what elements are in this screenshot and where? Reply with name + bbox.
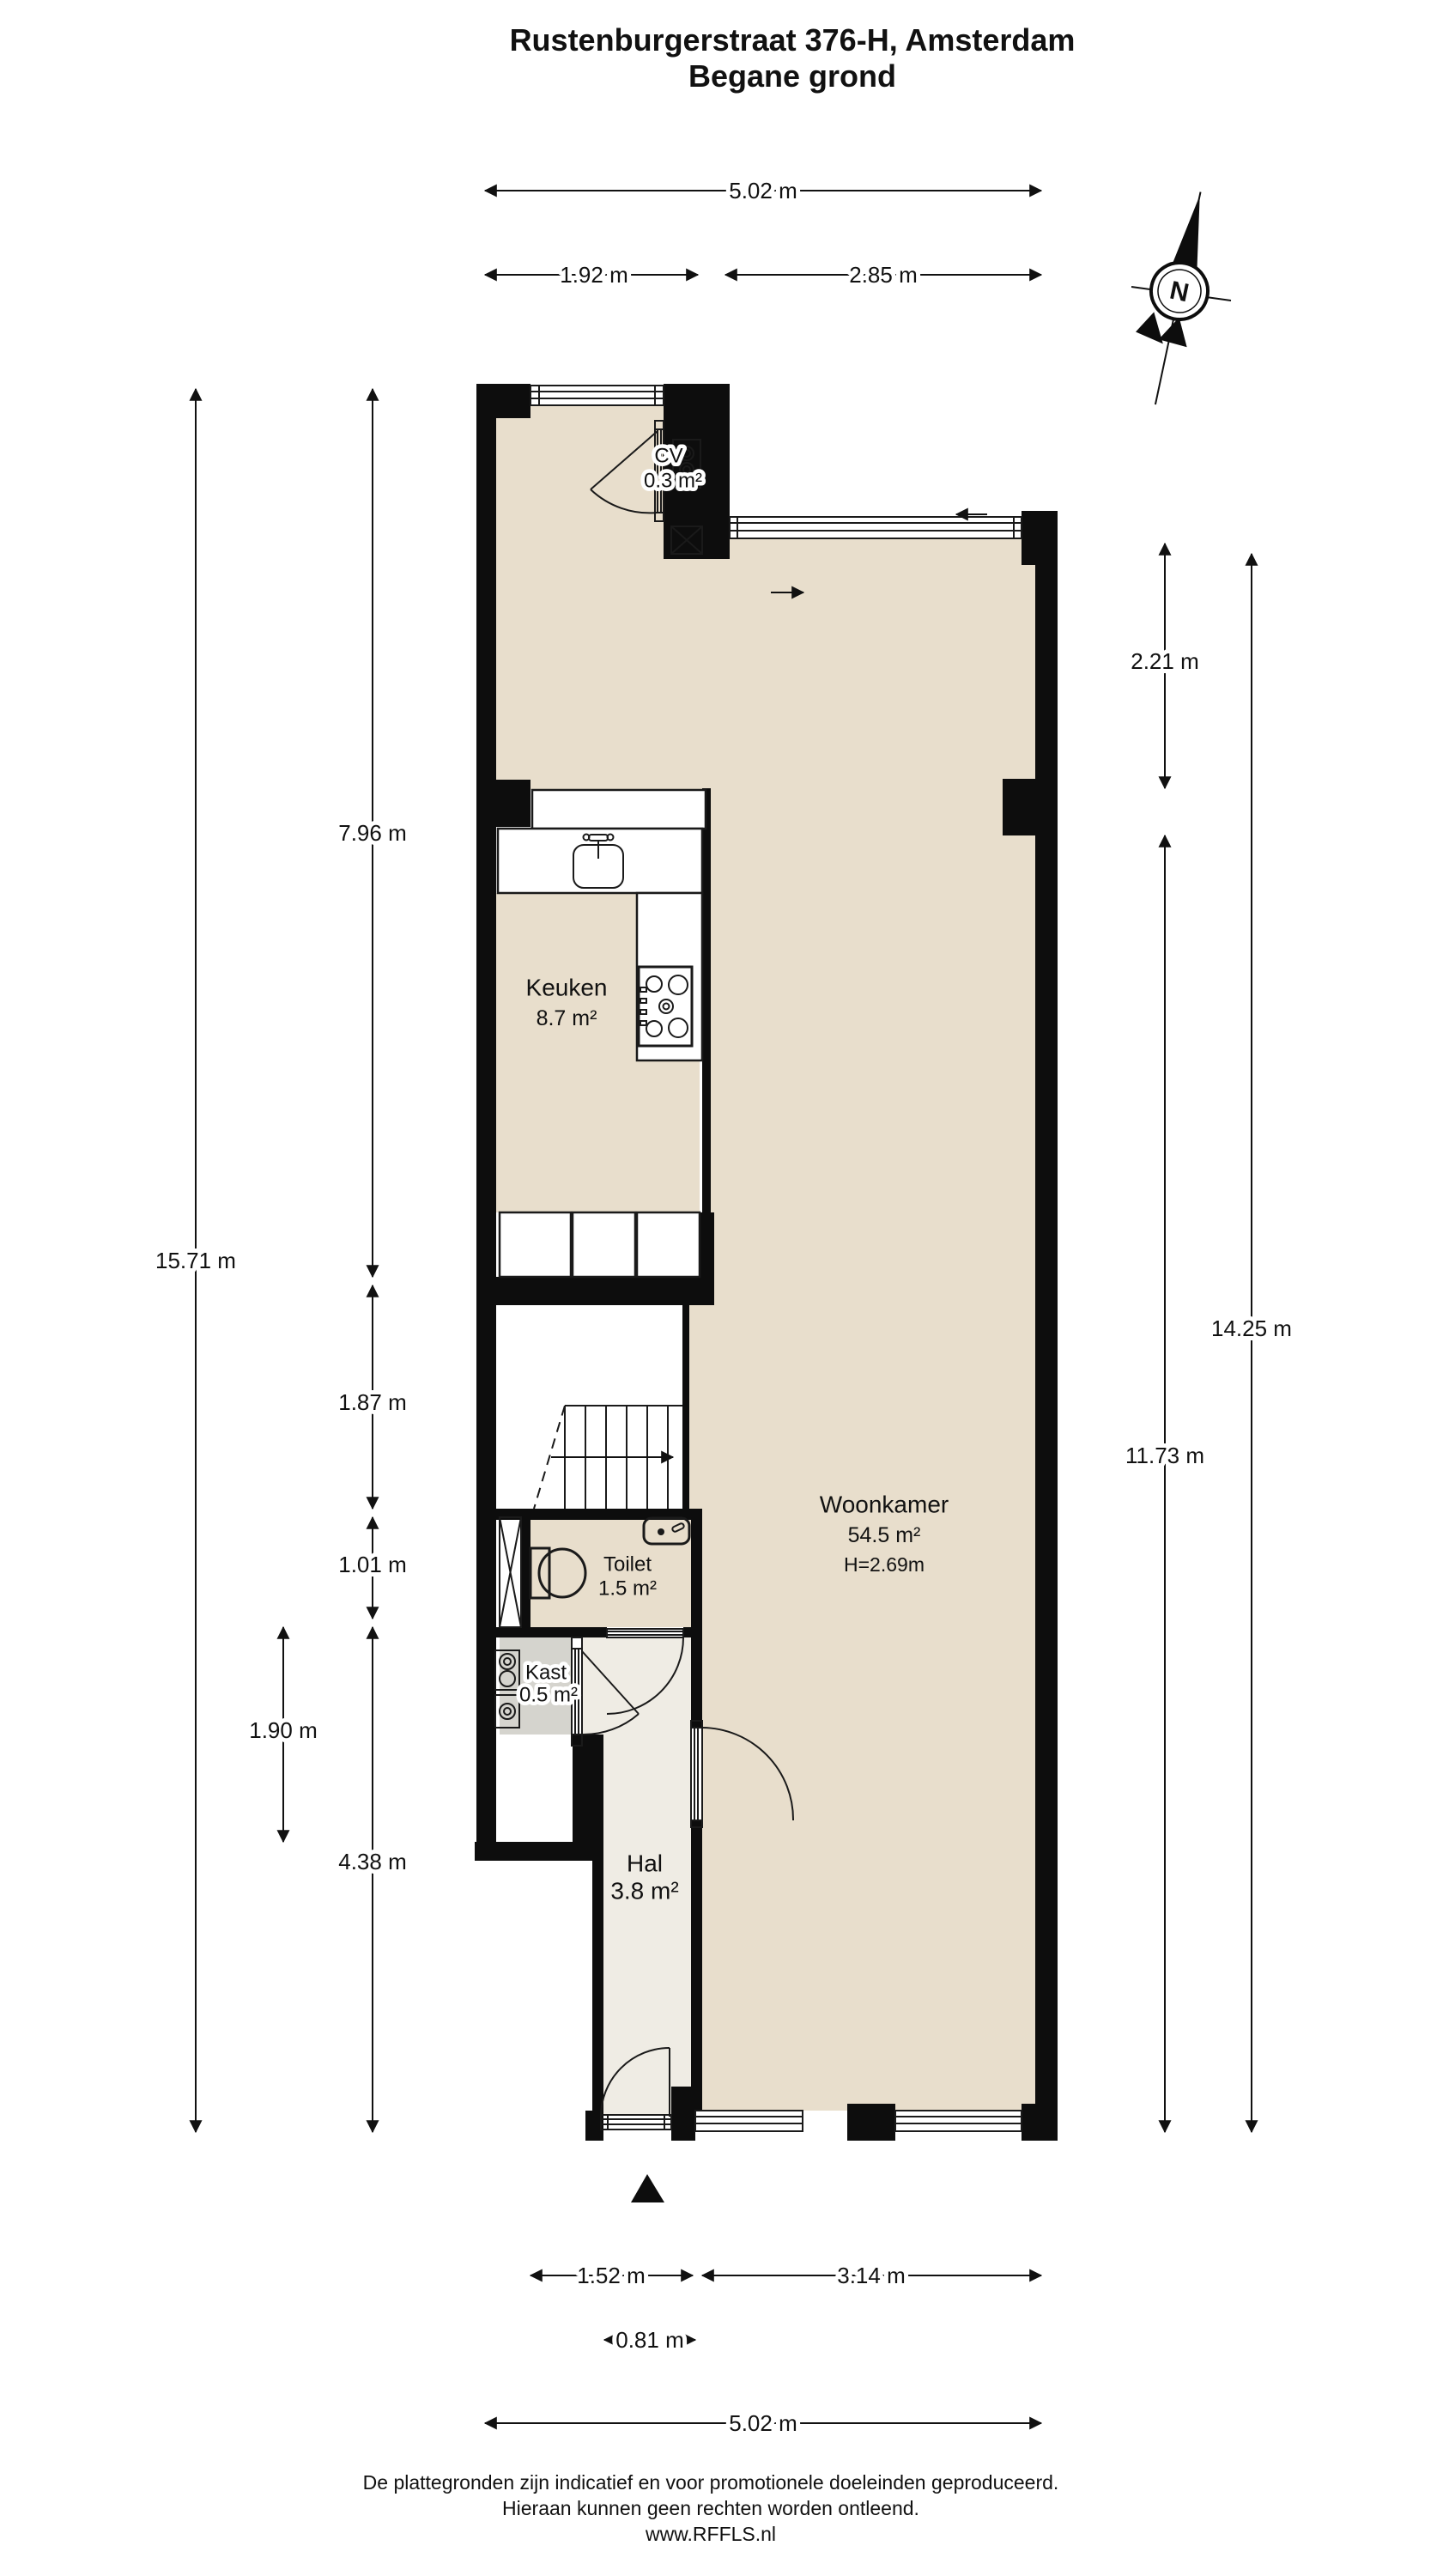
staircase <box>496 1305 682 1509</box>
cv-area: 0.3 m² <box>644 470 702 493</box>
dim-left-toilet: 1.01 m <box>338 1552 407 1577</box>
keuken-area: 8.7 m² <box>537 1006 597 1030</box>
hal-label: Hal <box>627 1850 663 1877</box>
window-bottom-left <box>695 2111 803 2131</box>
dim-right-lower: 11.73 m <box>1125 1443 1204 1468</box>
woonkamer-area: 54.5 m² <box>848 1523 921 1547</box>
front-room-floor <box>495 406 664 559</box>
window-bottom-right <box>895 2111 1022 2131</box>
window-north-long <box>730 517 1022 538</box>
toilet-area: 1.5 m² <box>598 1577 657 1601</box>
footer-disclaimer: De plattegronden zijn indicatief en voor… <box>0 2470 1422 2547</box>
kitchen-counter-top <box>532 790 706 829</box>
front-room-floor-lower <box>495 559 711 790</box>
shaft-icon <box>500 1517 521 1627</box>
toilet-label: Toilet <box>603 1553 652 1577</box>
woonkamer-height: H=2.69m <box>844 1553 925 1576</box>
dim-left-lower: 4.38 m <box>338 1849 407 1874</box>
footer-line-3: www.RFFLS.nl <box>0 2521 1422 2547</box>
dim-top-right: 2.85 m <box>849 262 918 288</box>
woonkamer-label: Woonkamer <box>820 1492 949 1518</box>
cv-label: CV <box>654 445 682 468</box>
dim-left-stairs: 1.87 m <box>338 1389 407 1415</box>
kast-label: Kast <box>525 1662 567 1685</box>
dim-bottom-window: 3.14 m <box>837 2263 906 2288</box>
compass-rose: N <box>1122 185 1231 410</box>
hal-area: 3.8 m² <box>610 1878 678 1905</box>
kitchen-counter-sink <box>498 829 702 893</box>
dim-top-left: 1.92 m <box>560 262 628 288</box>
window-top-left <box>530 386 664 405</box>
footer-line-1: De plattegronden zijn indicatief en voor… <box>0 2470 1422 2495</box>
floorplan-canvas: N 5.02 m 1.92 m 2.85 m <box>0 0 1449 2576</box>
entrance-marker-icon <box>631 2174 664 2202</box>
keuken-floor-right <box>637 1060 700 1212</box>
woonkamer-floor <box>689 538 1035 2111</box>
dim-top-total: 5.02 m <box>729 178 797 204</box>
footer-line-2: Hieraan kunnen geen rechten worden ontle… <box>0 2495 1422 2521</box>
dim-right-upper: 2.21 m <box>1131 648 1199 674</box>
floorplan-page: Rustenburgerstraat 376-H, Amsterdam Bega… <box>0 0 1449 2576</box>
dim-left-kast: 1.90 m <box>249 1717 318 1743</box>
kitchen-closet-row <box>500 1212 700 1277</box>
dim-bottom-door: 0.81 m <box>615 2327 684 2353</box>
dim-left-upper: 7.96 m <box>338 820 407 846</box>
keuken-label: Keuken <box>526 975 608 1001</box>
keuken-floor <box>496 893 637 1212</box>
dim-bottom-hal: 1.52 m <box>577 2263 646 2288</box>
kast-area: 0.5 m² <box>519 1684 578 1707</box>
dim-bottom-total: 5.02 m <box>729 2410 797 2436</box>
dim-left-total: 15.71 m <box>155 1248 236 1273</box>
dim-right-total: 14.25 m <box>1211 1315 1292 1341</box>
